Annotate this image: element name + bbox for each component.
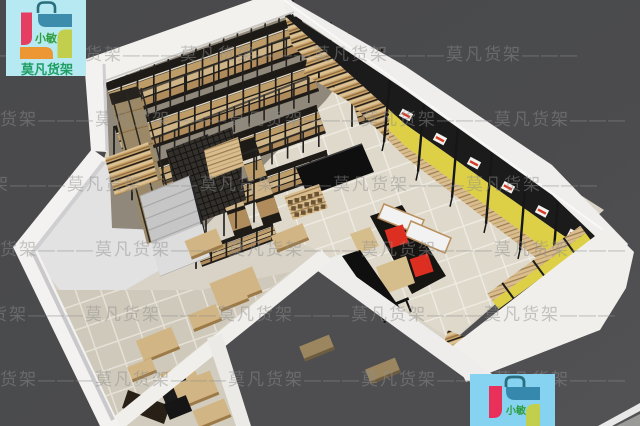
svg-text:莫凡货架———莫凡货架———莫凡货架———莫凡货架———莫凡: 莫凡货架———莫凡货架———莫凡货架———莫凡货架———莫凡货架——— xyxy=(0,305,617,324)
svg-text:莫凡货架———莫凡货架———莫凡货架———莫凡货架———莫凡: 莫凡货架———莫凡货架———莫凡货架———莫凡货架———莫凡货架——— xyxy=(0,240,627,259)
svg-text:莫凡货架: 莫凡货架 xyxy=(20,62,73,77)
svg-text:莫凡货架———莫凡货架———莫凡货架———莫凡货架———莫凡: 莫凡货架———莫凡货架———莫凡货架———莫凡货架———莫凡货架——— xyxy=(0,175,599,194)
svg-text:小敏: 小敏 xyxy=(505,404,526,417)
svg-text:莫凡货架———莫凡货架———莫凡货架———莫凡货架———莫凡: 莫凡货架———莫凡货架———莫凡货架———莫凡货架———莫凡货架——— xyxy=(0,45,579,64)
svg-text:小敏: 小敏 xyxy=(34,31,58,45)
svg-text:莫凡货架———莫凡货架———莫凡货架———莫凡货架———莫凡: 莫凡货架———莫凡货架———莫凡货架———莫凡货架———莫凡货架——— xyxy=(0,110,627,129)
